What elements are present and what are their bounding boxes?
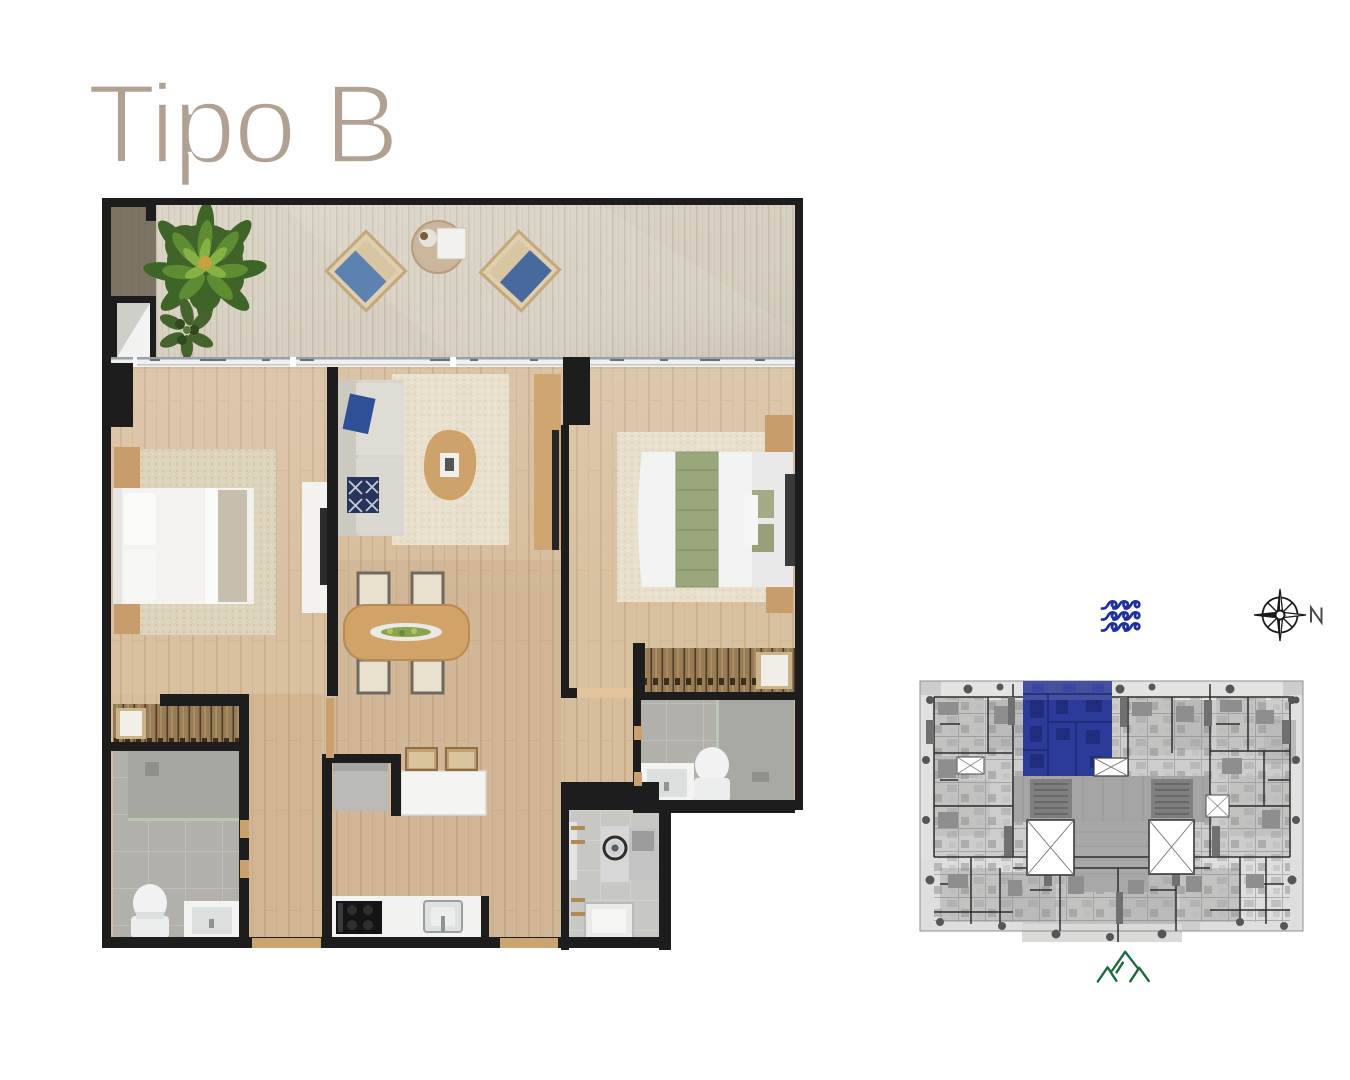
svg-text:Tipo B: Tipo B (87, 61, 397, 187)
